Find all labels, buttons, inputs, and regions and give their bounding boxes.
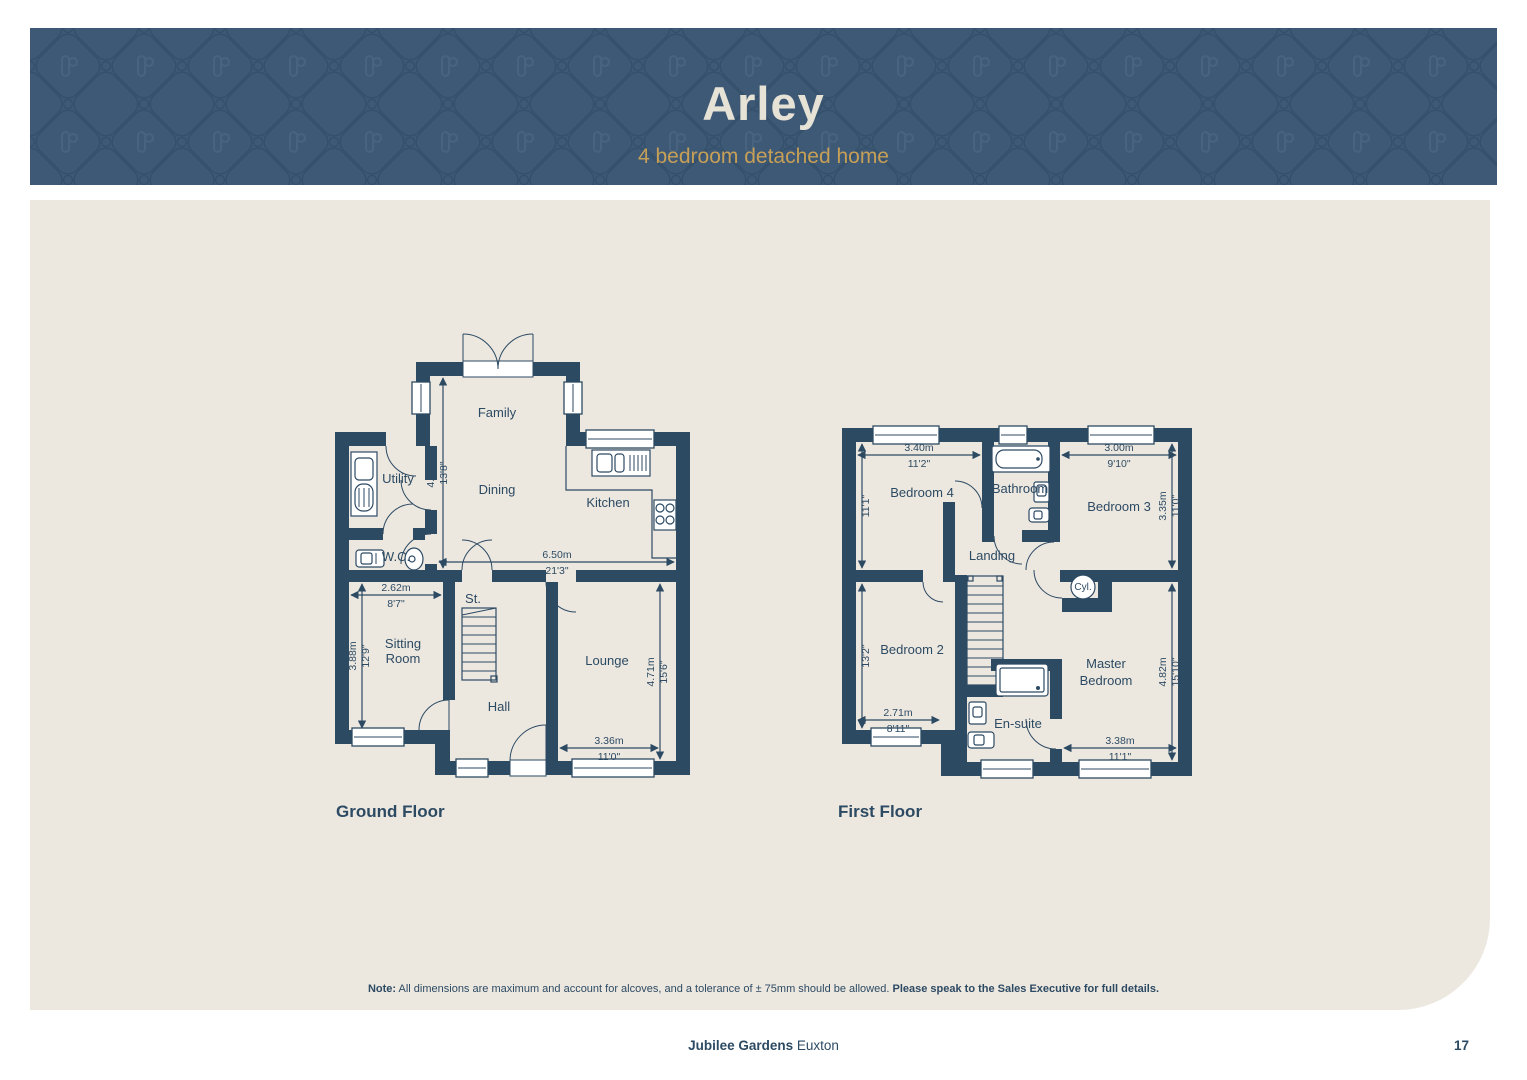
dim-sitting-depth-m: 3.88m xyxy=(347,641,359,670)
room-label-master-1: Master xyxy=(1086,656,1126,671)
gf-wc-toilet-icon xyxy=(356,550,384,567)
room-label-landing: Landing xyxy=(969,548,1015,563)
note-emphasis: Please speak to the Sales Executive for … xyxy=(892,983,1159,995)
note-body: All dimensions are maximum and account f… xyxy=(396,983,892,995)
room-label-bathroom: Bathroom xyxy=(992,481,1048,496)
page-number: 17 xyxy=(1454,1038,1469,1053)
ff-ensuite-basin-icon xyxy=(969,702,986,724)
dim-bedroom2-depth-m: 4.01m xyxy=(847,641,859,670)
room-label-kitchen: Kitchen xyxy=(586,495,629,510)
note-prefix: Note: xyxy=(368,983,396,995)
development-location: Euxton xyxy=(797,1038,839,1053)
ff-bath-icon xyxy=(992,446,1050,472)
gf-utility-sink-icon xyxy=(351,452,377,516)
dim-bedroom2-width-m: 2.71m xyxy=(883,707,912,719)
room-label-ensuite: En-suite xyxy=(994,716,1042,731)
dim-sitting-width-ft: 8'7" xyxy=(387,598,405,610)
dim-lounge-width-ft: 11'0" xyxy=(598,751,621,763)
room-label-lounge: Lounge xyxy=(585,653,628,668)
ff-cylinder-icon: Cyl. xyxy=(1071,575,1095,599)
room-label-bedroom4: Bedroom 4 xyxy=(890,485,954,500)
room-label-hall: Hall xyxy=(488,699,511,714)
room-label-master-2: Bedroom xyxy=(1080,673,1133,688)
room-label-dining: Dining xyxy=(479,482,516,497)
dim-bedroom4-width-m: 3.40m xyxy=(904,442,933,454)
room-label-family: Family xyxy=(478,405,517,420)
dim-bedroom3-depth-ft: 11'0" xyxy=(1170,494,1182,517)
dim-kitchen-width-ft: 21'3" xyxy=(545,565,569,577)
dim-bedroom3-width-m: 3.00m xyxy=(1104,442,1133,454)
dim-master-depth-m: 4.82m xyxy=(1157,657,1169,686)
dim-master-depth-ft: 15'10" xyxy=(1170,657,1182,686)
dim-bedroom4-width-ft: 11'2" xyxy=(908,458,931,470)
room-label-bedroom3: Bedroom 3 xyxy=(1087,499,1151,514)
dim-lounge-depth-m: 4.71m xyxy=(645,657,657,686)
room-label-utility: Utility xyxy=(382,471,414,486)
footer: Jubilee Gardens Euxton xyxy=(0,1038,1527,1053)
dim-master-width-m: 3.38m xyxy=(1105,735,1134,747)
dim-family-depth-m: 4.16m xyxy=(425,458,437,487)
room-label-cyl: Cyl. xyxy=(1074,582,1091,593)
page-subtitle: 4 bedroom detached home xyxy=(30,146,1497,167)
dim-bedroom2-width-ft: 8'11" xyxy=(887,723,910,735)
page-title: Arley xyxy=(30,80,1497,127)
dim-family-depth-ft: 13'8" xyxy=(438,461,450,485)
ff-ensuite-toilet-icon xyxy=(968,732,994,748)
room-label-sitting-2: Room xyxy=(386,651,421,666)
first-floor-plan: Cyl. 3.40m 11'2" 3.00m 9'10" 3.38m 11'1"… xyxy=(830,418,1195,783)
dim-bedroom3-depth-m: 3.35m xyxy=(1157,491,1169,520)
ground-floor-caption: Ground Floor xyxy=(336,802,445,822)
gf-stairs-icon xyxy=(462,608,497,682)
dim-lounge-width-m: 3.36m xyxy=(594,735,623,747)
ff-shower-icon xyxy=(996,664,1048,696)
dimensions-note: Note: All dimensions are maximum and acc… xyxy=(0,983,1527,995)
ff-bathroom-toilet-icon xyxy=(1029,508,1049,522)
content-panel xyxy=(30,200,1490,1010)
development-name: Jubilee Gardens xyxy=(688,1038,793,1053)
room-label-bedroom2: Bedroom 2 xyxy=(880,642,944,657)
dim-bedroom4-depth-m: 3.38m xyxy=(847,491,859,520)
room-label-store: St. xyxy=(465,591,481,606)
dim-sitting-depth-ft: 12'9" xyxy=(360,644,372,668)
dim-bedroom2-depth-ft: 13'2" xyxy=(860,644,872,668)
room-label-sitting-1: Sitting xyxy=(385,636,421,651)
room-label-wc: W.C. xyxy=(382,549,410,564)
dim-kitchen-width-m: 6.50m xyxy=(542,549,571,561)
gf-kitchen-sink-icon xyxy=(592,450,650,476)
dim-lounge-depth-ft: 15'6" xyxy=(658,660,670,684)
dim-master-width-ft: 11'1" xyxy=(1109,751,1132,763)
dim-bedroom4-depth-ft: 11'1" xyxy=(860,494,872,517)
first-floor-caption: First Floor xyxy=(838,802,922,822)
gf-walls xyxy=(335,362,690,775)
ground-floor-plan: 4.16m 13'8" 6.50m 21'3" 2.62m 8'7" 3.88m… xyxy=(320,312,705,792)
dim-sitting-width-m: 2.62m xyxy=(381,582,410,594)
gf-hob-icon xyxy=(654,500,676,530)
header-banner: Arley 4 bedroom detached home xyxy=(30,28,1497,185)
dim-bedroom3-width-ft: 9'10" xyxy=(1107,458,1131,470)
